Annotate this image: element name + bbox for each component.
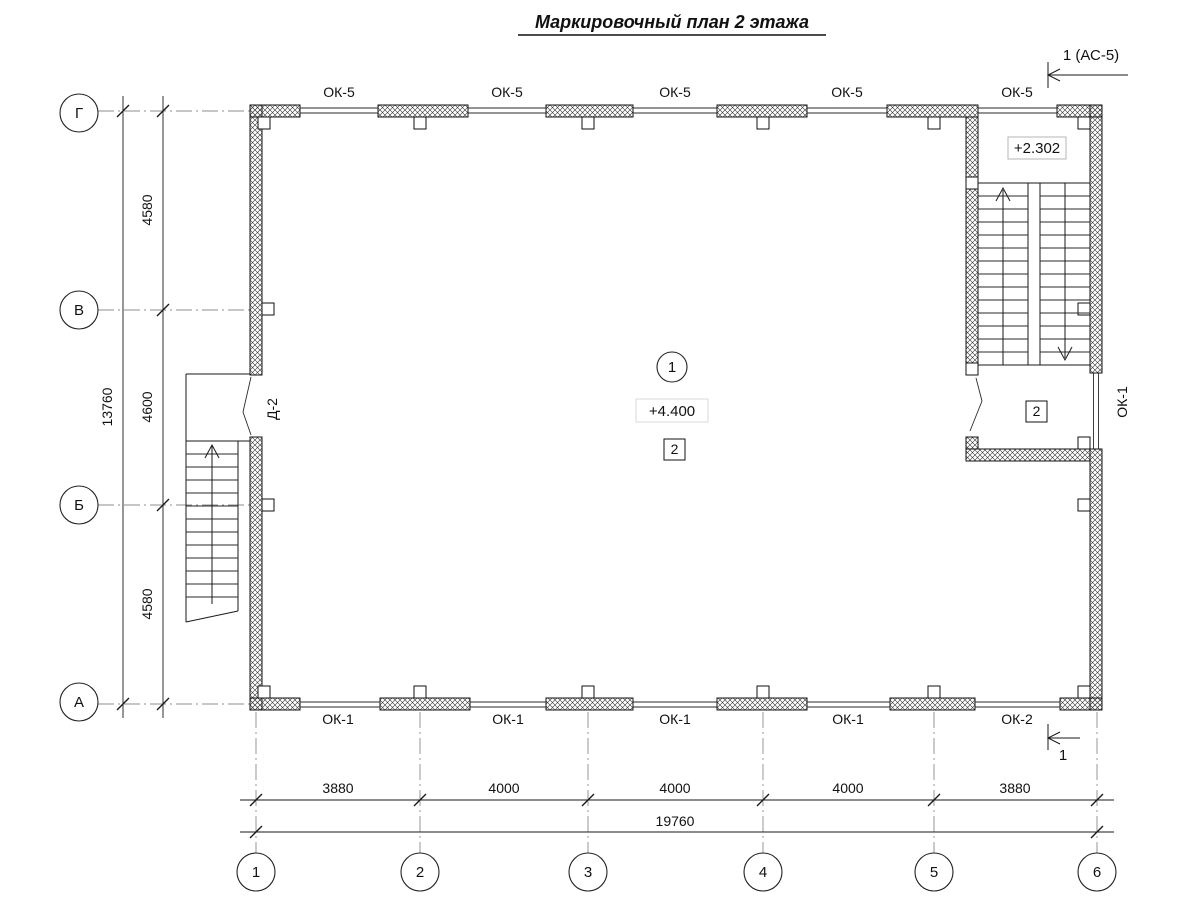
wall-top-pier (1057, 105, 1102, 117)
floor-plan-drawing: Маркировочный план 2 этажа 1 (АС-5) 1 (0, 0, 1200, 900)
axis-label: 3 (584, 864, 592, 881)
wall-bottom-pier (717, 698, 807, 710)
window-label: ОК-1 (1114, 386, 1130, 418)
section-mark-top-label: 1 (АС-5) (1063, 47, 1119, 64)
dim-value: 4580 (139, 588, 155, 619)
dim-value: 4600 (139, 391, 155, 422)
grid-axis-lines (98, 111, 1097, 853)
window-label: ОК-5 (659, 84, 691, 100)
dim-value: 3880 (322, 780, 353, 796)
axis-label: А (74, 694, 84, 711)
dim-value: 4000 (659, 780, 690, 796)
dim-total: 13760 (99, 387, 115, 426)
wall-top-pier (250, 105, 300, 117)
dimensions-left: 4580 4600 4580 13760 (99, 96, 169, 718)
axis-label: 1 (252, 864, 260, 881)
wall-top-pier (717, 105, 807, 117)
room-zone-number: 2 (671, 441, 679, 457)
door-leaf-icon (243, 377, 251, 435)
dim-value: 4580 (139, 194, 155, 225)
axis-label: 6 (1093, 864, 1101, 881)
room-annotations: 1 +4.400 2 (636, 352, 708, 460)
wall-left-upper (250, 105, 262, 375)
window-labels: ОК-5 ОК-5 ОК-5 ОК-5 ОК-5 ОК-1 ОК-1 ОК-1 … (322, 84, 1130, 727)
drawing-title: Маркировочный план 2 этажа (518, 12, 826, 35)
wall-top-pier (887, 105, 978, 117)
window-label: ОК-5 (323, 84, 355, 100)
axis-label: В (74, 302, 84, 319)
window-label: ОК-5 (831, 84, 863, 100)
dim-total: 19760 (656, 813, 695, 829)
axis-label: Г (75, 105, 83, 122)
wall-bottom-pier (250, 698, 300, 710)
room-elevation: +4.400 (649, 403, 695, 420)
wall-bottom-pier (546, 698, 633, 710)
window-label: ОК-5 (1001, 84, 1033, 100)
stairwell-west-wall (966, 117, 978, 375)
dim-value: 3880 (999, 780, 1030, 796)
wall-bottom-pier (890, 698, 975, 710)
floor-plan-canvas: Маркировочный план 2 этажа 1 (АС-5) 1 (0, 0, 1200, 900)
wall-right-upper (1090, 105, 1102, 373)
wall-top-pier (378, 105, 468, 117)
dim-value: 4000 (832, 780, 863, 796)
window-label: ОК-1 (832, 711, 864, 727)
stairwell: +2.302 2 (970, 137, 1090, 431)
window-label: ОК-1 (659, 711, 691, 727)
stairwell-west-wall-stub (966, 437, 978, 449)
wall-right-lower (1090, 449, 1102, 710)
section-mark-bottom: 1 (1048, 724, 1080, 764)
landing-elevation: +2.302 (1014, 140, 1060, 157)
stairwell-south-wall (966, 449, 1090, 461)
axis-label: 2 (416, 864, 424, 881)
section-mark-top: 1 (АС-5) (1048, 47, 1128, 88)
room-number: 1 (668, 359, 676, 376)
axis-bubbles-left: Г В Б А (60, 94, 98, 721)
stairwell-door-leaf-icon (970, 378, 982, 431)
wall-bottom-pier (1060, 698, 1102, 710)
axis-label: 4 (759, 864, 767, 881)
wall-left-lower (250, 437, 262, 710)
window-label: ОК-2 (1001, 711, 1033, 727)
window-label: ОК-1 (492, 711, 524, 727)
axis-bubbles-bottom: 1 2 3 4 5 6 (237, 853, 1116, 891)
stairwell-zone-number: 2 (1033, 403, 1041, 419)
axis-label: 5 (930, 864, 938, 881)
wall-bottom-pier (380, 698, 470, 710)
door-d2: Д-2 (243, 377, 280, 435)
door-label: Д-2 (264, 398, 280, 420)
dimensions-bottom: 3880 4000 4000 4000 3880 19760 (240, 780, 1114, 838)
wall-top-pier (546, 105, 633, 117)
dim-value: 4000 (488, 780, 519, 796)
window-label: ОК-1 (322, 711, 354, 727)
page-title: Маркировочный план 2 этажа (535, 12, 809, 32)
exterior-stair (186, 374, 250, 622)
window-label: ОК-5 (491, 84, 523, 100)
axis-label: Б (74, 497, 84, 514)
section-mark-bottom-label: 1 (1059, 747, 1067, 764)
